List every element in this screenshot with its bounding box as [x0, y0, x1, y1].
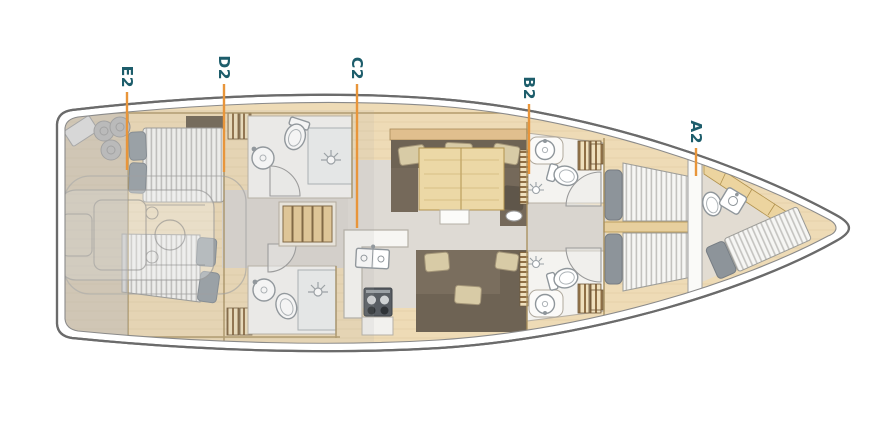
cushion [495, 252, 519, 272]
port-settee [416, 250, 527, 332]
yacht-layout-figure: E2 D2 C2 B2 A2 [0, 0, 890, 446]
stool [506, 211, 522, 221]
pillow [605, 234, 622, 284]
locker-slats [578, 141, 589, 170]
cushion [454, 285, 481, 305]
cabin-label-c2: C2 [348, 57, 366, 80]
bed-divider [604, 222, 692, 232]
cockpit-shadow-overlay [56, 110, 374, 342]
cabin-label-a2: A2 [687, 120, 705, 144]
saloon-dinette [390, 129, 527, 226]
sofa-arm-left [391, 168, 418, 212]
pillow [605, 170, 622, 220]
cabin-label-b2: B2 [520, 76, 538, 100]
deck-plan-svg: E2 D2 C2 B2 A2 [0, 0, 890, 446]
locker-slats [591, 144, 603, 164]
cabin-label-d2: D2 [215, 55, 233, 80]
locker-slats [578, 284, 589, 313]
locker-slats [591, 290, 603, 310]
sideboard [390, 129, 527, 140]
cabin-label-e2: E2 [118, 66, 136, 88]
cushion [424, 252, 449, 272]
interior [56, 102, 840, 343]
